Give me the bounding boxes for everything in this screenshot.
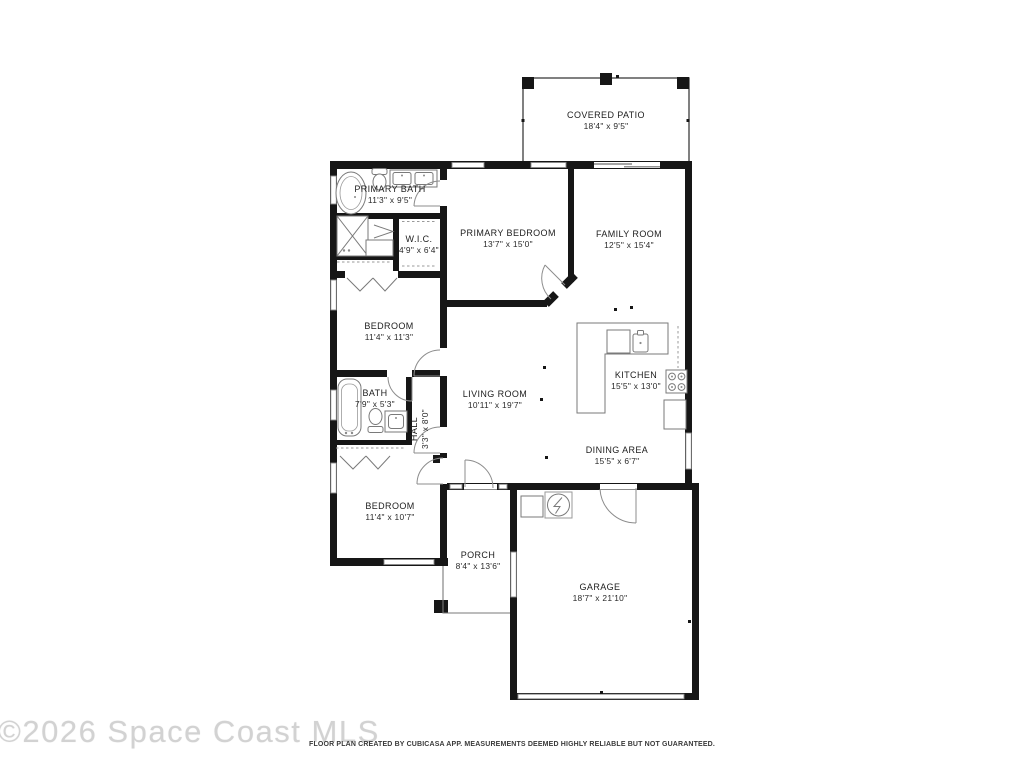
disclaimer-text: FLOOR PLAN CREATED BY CUBICASA APP. MEAS… bbox=[0, 741, 1024, 748]
toilet-icon bbox=[372, 169, 387, 191]
dishwasher-icon bbox=[607, 330, 630, 353]
kitchen-sink-icon bbox=[633, 331, 648, 353]
bath-fixtures bbox=[338, 379, 407, 436]
cabinet-icon bbox=[366, 240, 393, 256]
double-sink-vanity-icon bbox=[390, 170, 437, 187]
toilet-icon bbox=[368, 409, 383, 433]
stove-icon bbox=[666, 370, 687, 393]
garage-door bbox=[518, 694, 684, 699]
water-heater-icon bbox=[545, 492, 572, 518]
washer-icon bbox=[521, 496, 543, 517]
covered-patio-outline bbox=[522, 73, 690, 163]
kitchen-fixtures bbox=[577, 323, 687, 429]
garage-entry-door-arc bbox=[600, 488, 636, 523]
primary-bath-fixtures bbox=[336, 169, 437, 257]
floor-plan-drawing bbox=[0, 0, 1024, 768]
floor-plan-page: COVERED PATIO 18'4" x 9'5" PRIMARY BATH … bbox=[0, 0, 1024, 768]
sink-icon bbox=[385, 411, 407, 432]
refrigerator-icon bbox=[664, 400, 686, 429]
garage-fixtures bbox=[521, 492, 572, 518]
porch-boundary bbox=[443, 566, 510, 613]
shower-icon bbox=[337, 216, 368, 256]
hall-door-arc bbox=[414, 427, 440, 453]
